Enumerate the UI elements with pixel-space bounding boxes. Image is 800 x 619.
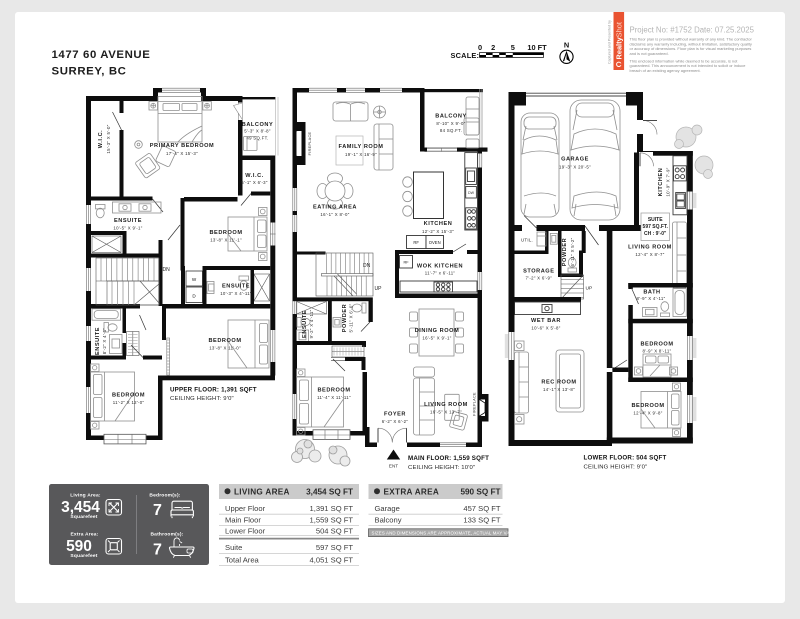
svg-text:19'-3" X 20'-5": 19'-3" X 20'-5" — [559, 165, 591, 170]
svg-text:CEILING HEIGHT: 9'0": CEILING HEIGHT: 9'0" — [170, 396, 234, 402]
svg-text:Project No: #1752 Date: 07.2: Project No: #1752 Date: 07.25.2025 — [630, 26, 755, 35]
svg-text:SIZES AND DIMENSIONS ARE APPRO: SIZES AND DIMENSIONS ARE APPROXIMATE, AC… — [372, 531, 516, 536]
svg-text:BATH: BATH — [643, 290, 660, 296]
svg-text:Living Area:: Living Area: — [70, 493, 101, 499]
svg-text:7: 7 — [153, 502, 162, 519]
svg-text:EXTRA AREA: EXTRA AREA — [384, 487, 440, 496]
svg-text:SURREY, BC: SURREY, BC — [52, 66, 127, 78]
svg-text:19'-1" X 16'-9": 19'-1" X 16'-9" — [345, 152, 377, 157]
svg-text:MAIN FLOOR: 1,559 SQFT: MAIN FLOOR: 1,559 SQFT — [408, 455, 489, 462]
svg-text:W.I.C.: W.I.C. — [245, 173, 264, 179]
svg-text:REC ROOM: REC ROOM — [541, 380, 576, 386]
svg-text:RealtyShot: RealtyShot — [615, 22, 624, 59]
svg-text:11'-2" X 12'-0": 11'-2" X 12'-0" — [113, 400, 145, 405]
svg-text:LOWER FLOOR: 504 SQFT: LOWER FLOOR: 504 SQFT — [584, 455, 667, 462]
svg-text:DN: DN — [363, 263, 371, 269]
svg-text:PRIMARY BEDROOM: PRIMARY BEDROOM — [150, 143, 215, 149]
svg-text:Upper Floor: Upper Floor — [225, 504, 266, 513]
svg-text:FOYER: FOYER — [384, 412, 406, 418]
svg-text:Balcony: Balcony — [375, 515, 402, 524]
svg-text:16'-5" X 9'-1": 16'-5" X 9'-1" — [422, 336, 451, 341]
svg-text:W.I.C.: W.I.C. — [98, 130, 104, 149]
svg-text:RF: RF — [413, 240, 419, 245]
svg-text:BEDROOM: BEDROOM — [209, 230, 242, 236]
svg-text:13'-8" X 11'-0": 13'-8" X 11'-0" — [209, 346, 241, 351]
svg-text:5'-1" X 6'-3": 5'-1" X 6'-3" — [241, 180, 268, 185]
svg-text:12'-4" X 8'-7": 12'-4" X 8'-7" — [635, 252, 664, 257]
svg-text:STORAGE: STORAGE — [523, 268, 554, 274]
svg-text:5: 5 — [511, 43, 515, 52]
svg-text:Squarefeet: Squarefeet — [70, 514, 97, 520]
svg-text:597 SQ.FT.: 597 SQ.FT. — [643, 224, 669, 230]
svg-text:DW: DW — [468, 191, 475, 195]
svg-text:1,559 SQ FT: 1,559 SQ FT — [310, 515, 354, 524]
svg-text:KITCHEN: KITCHEN — [658, 168, 664, 197]
svg-text:CEILING HEIGHT: 9'0": CEILING HEIGHT: 9'0" — [584, 464, 648, 470]
svg-text:UP: UP — [586, 286, 593, 292]
svg-text:8'-9" X 8'-11": 8'-9" X 8'-11" — [643, 349, 672, 354]
svg-text:7'-2" X 6'-9": 7'-2" X 6'-9" — [526, 276, 553, 281]
svg-text:9'-2" X 4'-11": 9'-2" X 4'-11" — [309, 309, 314, 338]
svg-text:BEDROOM: BEDROOM — [640, 342, 673, 348]
svg-text:FIREPLACE: FIREPLACE — [308, 131, 312, 155]
svg-text:3,454: 3,454 — [61, 499, 100, 516]
svg-text:133 SQ FT: 133 SQ FT — [463, 515, 500, 524]
svg-text:5'-11" X 6'-0": 5'-11" X 6'-0" — [349, 303, 354, 332]
svg-text:ENSUITE: ENSUITE — [95, 327, 101, 355]
svg-text:597 SQ FT: 597 SQ FT — [316, 543, 353, 552]
svg-text:15'-3" X 5'-0": 15'-3" X 5'-0" — [106, 124, 111, 153]
svg-text:BALCONY: BALCONY — [435, 114, 467, 120]
svg-text:0: 0 — [478, 43, 482, 52]
svg-text:8'-2" X 4'-1": 8'-2" X 4'-1" — [102, 328, 107, 355]
svg-text:504 SQ FT: 504 SQ FT — [316, 527, 353, 536]
svg-text:W: W — [192, 277, 197, 282]
svg-text:12'-2" X 15'-3": 12'-2" X 15'-3" — [422, 229, 454, 234]
svg-text:N: N — [564, 41, 569, 50]
svg-text:3,454 SQ FT: 3,454 SQ FT — [306, 487, 353, 496]
svg-text:ENT: ENT — [389, 464, 398, 469]
svg-text:7: 7 — [153, 542, 162, 559]
svg-text:11'-4" X 11'-11": 11'-4" X 11'-11" — [317, 395, 351, 400]
svg-text:ENSUITE: ENSUITE — [222, 284, 250, 290]
svg-text:10'-3" X 4'-11": 10'-3" X 4'-11" — [220, 291, 252, 296]
svg-text:FAMILY ROOM: FAMILY ROOM — [339, 144, 384, 150]
svg-text:590 SQ FT: 590 SQ FT — [460, 487, 500, 496]
svg-text:ENSUITE: ENSUITE — [302, 310, 308, 338]
svg-text:BEDROOM: BEDROOM — [631, 403, 664, 409]
svg-text:DINING ROOM: DINING ROOM — [415, 328, 460, 334]
svg-text:DN: DN — [163, 267, 171, 273]
svg-text:breach of an existing agency a: breach of an existing agency agreement. — [630, 68, 701, 73]
svg-text:590: 590 — [66, 538, 92, 555]
svg-text:BEDROOM: BEDROOM — [317, 388, 350, 394]
svg-text:BEDROOM: BEDROOM — [112, 393, 145, 399]
svg-text:Bedroom(s):: Bedroom(s): — [149, 493, 180, 499]
svg-text:Bathroom(s):: Bathroom(s): — [150, 532, 183, 538]
svg-text:RF: RF — [403, 261, 409, 265]
svg-text:16'-5" X 13'-7": 16'-5" X 13'-7" — [430, 410, 462, 415]
svg-text:10'-5" X 9'-1": 10'-5" X 9'-1" — [113, 226, 142, 231]
svg-text:LIVING ROOM: LIVING ROOM — [424, 402, 468, 408]
svg-text:Main Floor: Main Floor — [225, 515, 261, 524]
svg-text:4,051 SQ FT: 4,051 SQ FT — [310, 555, 354, 564]
svg-text:POWDER: POWDER — [342, 304, 348, 332]
svg-text:12'-4" X 9'-8": 12'-4" X 9'-8" — [633, 411, 662, 416]
svg-text:and is not guaranteed.: and is not guaranteed. — [630, 51, 669, 56]
svg-text:KITCHEN: KITCHEN — [424, 221, 453, 227]
svg-text:84 SQ.FT.: 84 SQ.FT. — [440, 128, 462, 133]
svg-text:LIVING ROOM: LIVING ROOM — [628, 245, 672, 251]
svg-text:UP: UP — [375, 286, 383, 292]
svg-text:10'-6" X 5'-8": 10'-6" X 5'-8" — [531, 326, 560, 331]
svg-text:Captured and Presented by: Captured and Presented by — [608, 20, 612, 64]
svg-text:16'-1" X 8'-0": 16'-1" X 8'-0" — [320, 212, 349, 217]
svg-text:CEILING HEIGHT: 10'0": CEILING HEIGHT: 10'0" — [408, 465, 475, 471]
svg-text:EATING AREA: EATING AREA — [313, 205, 357, 211]
svg-text:14'-1" X 13'-8": 14'-1" X 13'-8" — [543, 387, 575, 392]
svg-text:Total Area: Total Area — [225, 555, 260, 564]
svg-text:8'-10" X 9'-0": 8'-10" X 9'-0" — [436, 121, 465, 126]
svg-text:1477 60 AVENUE: 1477 60 AVENUE — [52, 49, 151, 61]
svg-text:UPPER FLOOR: 1,391 SQFT: UPPER FLOOR: 1,391 SQFT — [170, 387, 257, 394]
svg-text:10 FT: 10 FT — [527, 43, 547, 52]
svg-text:CH : 9'-0": CH : 9'-0" — [644, 231, 667, 237]
svg-text:6'-2" X 6'-2": 6'-2" X 6'-2" — [382, 419, 409, 424]
svg-text:FIREPLACE: FIREPLACE — [473, 392, 477, 416]
svg-text:10'-9" X 7'-9": 10'-9" X 7'-9" — [666, 167, 671, 196]
svg-text:LIVING AREA: LIVING AREA — [234, 487, 290, 496]
svg-text:GARAGE: GARAGE — [561, 157, 589, 163]
svg-text:6'-11" X 5'-2": 6'-11" X 5'-2" — [570, 237, 575, 266]
svg-text:Lower Floor: Lower Floor — [225, 527, 266, 536]
svg-text:Extra Area:: Extra Area: — [70, 532, 98, 538]
svg-text:BEDROOM: BEDROOM — [208, 338, 241, 344]
svg-text:17'-4" X 15'-3": 17'-4" X 15'-3" — [166, 151, 198, 156]
svg-text:2: 2 — [491, 43, 495, 52]
svg-text:WOK KITCHEN: WOK KITCHEN — [417, 264, 463, 270]
svg-text:POWDER: POWDER — [562, 238, 568, 266]
svg-text:UTIL.: UTIL. — [521, 238, 533, 243]
svg-text:SCALE:: SCALE: — [451, 51, 480, 60]
svg-text:ENSUITE: ENSUITE — [114, 218, 142, 224]
svg-text:Garage: Garage — [375, 504, 400, 513]
svg-text:WET BAR: WET BAR — [531, 318, 561, 324]
svg-text:457 SQ FT: 457 SQ FT — [463, 504, 500, 513]
svg-text:OVEN: OVEN — [429, 240, 441, 245]
svg-text:Squarefeet: Squarefeet — [70, 553, 97, 559]
svg-text:11'-7" x 6'-11": 11'-7" x 6'-11" — [425, 271, 456, 276]
svg-text:BALCONY: BALCONY — [242, 122, 274, 128]
svg-text:5'-3" X 8'-8": 5'-3" X 8'-8" — [244, 129, 271, 134]
svg-text:SUITE: SUITE — [648, 217, 663, 223]
svg-text:8'-9" X 4'-11": 8'-9" X 4'-11" — [637, 296, 666, 301]
svg-text:Suite: Suite — [225, 543, 242, 552]
svg-text:1,391 SQ FT: 1,391 SQ FT — [310, 504, 354, 513]
svg-text:13'-8" X 11'-1": 13'-8" X 11'-1" — [210, 238, 242, 243]
